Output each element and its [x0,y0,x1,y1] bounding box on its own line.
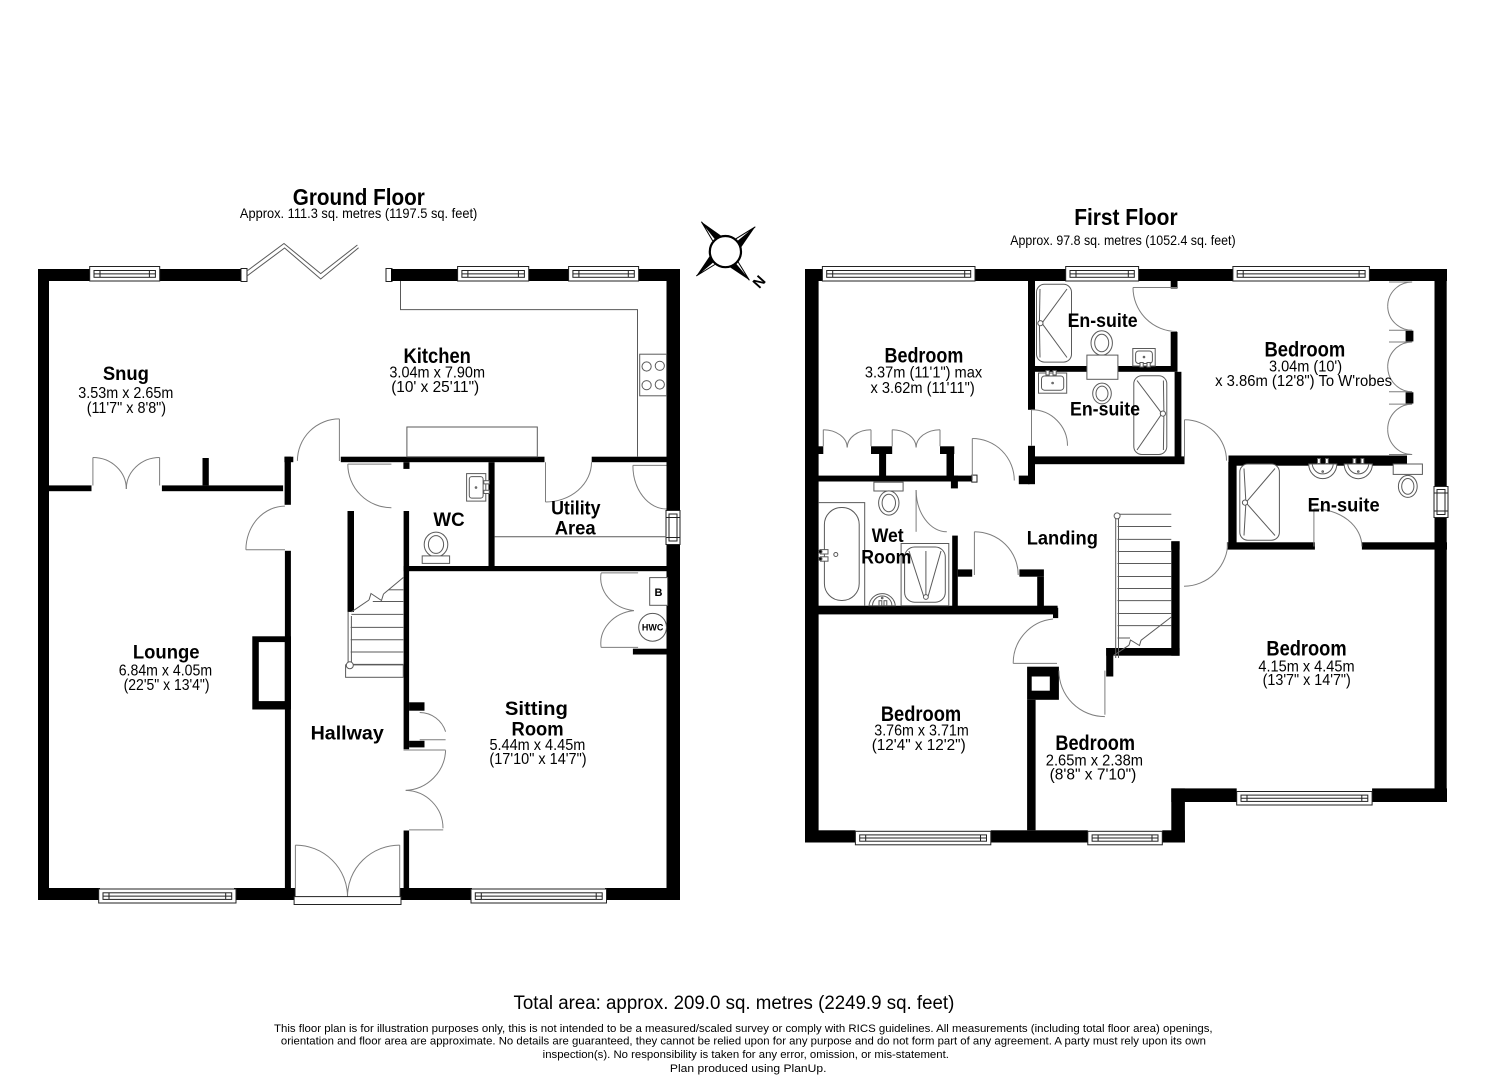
svg-text:Room: Room [861,547,911,568]
svg-text:This floor plan is for illustr: This floor plan is for illustration purp… [274,1023,1213,1035]
svg-text:(12'4" x 12'2"): (12'4" x 12'2") [872,737,966,754]
svg-text:HWC: HWC [642,623,664,633]
svg-text:Plan produced using PlanUp.: Plan produced using PlanUp. [670,1063,827,1075]
svg-text:orientation and floor area are: orientation and floor area are approxima… [281,1036,1206,1048]
svg-text:Approx. 97.8 sq. metres (1052.: Approx. 97.8 sq. metres (1052.4 sq. feet… [1010,232,1235,248]
svg-text:(8'8" x 7'10"): (8'8" x 7'10") [1050,766,1137,783]
svg-text:x 3.86m (12'8") To W'robes: x 3.86m (12'8") To W'robes [1215,373,1392,390]
svg-text:x 3.62m (11'11"): x 3.62m (11'11") [871,380,975,397]
svg-text:En-suite: En-suite [1070,400,1140,421]
svg-text:Wet: Wet [872,526,905,547]
svg-text:Snug: Snug [103,364,149,385]
svg-text:(13'7" x 14'7"): (13'7" x 14'7") [1263,672,1351,689]
svg-text:En-suite: En-suite [1068,311,1138,332]
svg-text:(22'5" x 13'4"): (22'5" x 13'4") [124,677,210,694]
svg-text:(11'7" x 8'8"): (11'7" x 8'8") [87,400,166,417]
svg-text:Landing: Landing [1027,528,1098,549]
svg-text:(10' x 25'11"): (10' x 25'11") [391,379,479,396]
svg-text:Hallway: Hallway [311,724,385,745]
svg-text:Total area: approx. 209.0 sq.: Total area: approx. 209.0 sq. metres (22… [514,993,955,1014]
svg-text:Utility: Utility [551,499,601,520]
svg-text:En-suite: En-suite [1308,495,1380,516]
svg-text:Bedroom: Bedroom [1266,637,1346,660]
svg-text:Approx. 111.3 sq. metres (1197: Approx. 111.3 sq. metres (1197.5 sq. fee… [240,205,477,221]
svg-text:Lounge: Lounge [133,642,200,663]
svg-text:Sitting: Sitting [505,699,568,720]
svg-text:inspection(s). No responsibili: inspection(s). No responsibility is take… [543,1049,949,1061]
svg-text:B: B [655,587,663,599]
svg-text:First Floor: First Floor [1074,204,1177,230]
svg-text:WC: WC [433,510,464,531]
svg-text:(17'10" x 14'7"): (17'10" x 14'7") [489,751,586,768]
svg-text:Bedroom: Bedroom [1055,732,1135,755]
svg-text:Area: Area [555,518,596,539]
